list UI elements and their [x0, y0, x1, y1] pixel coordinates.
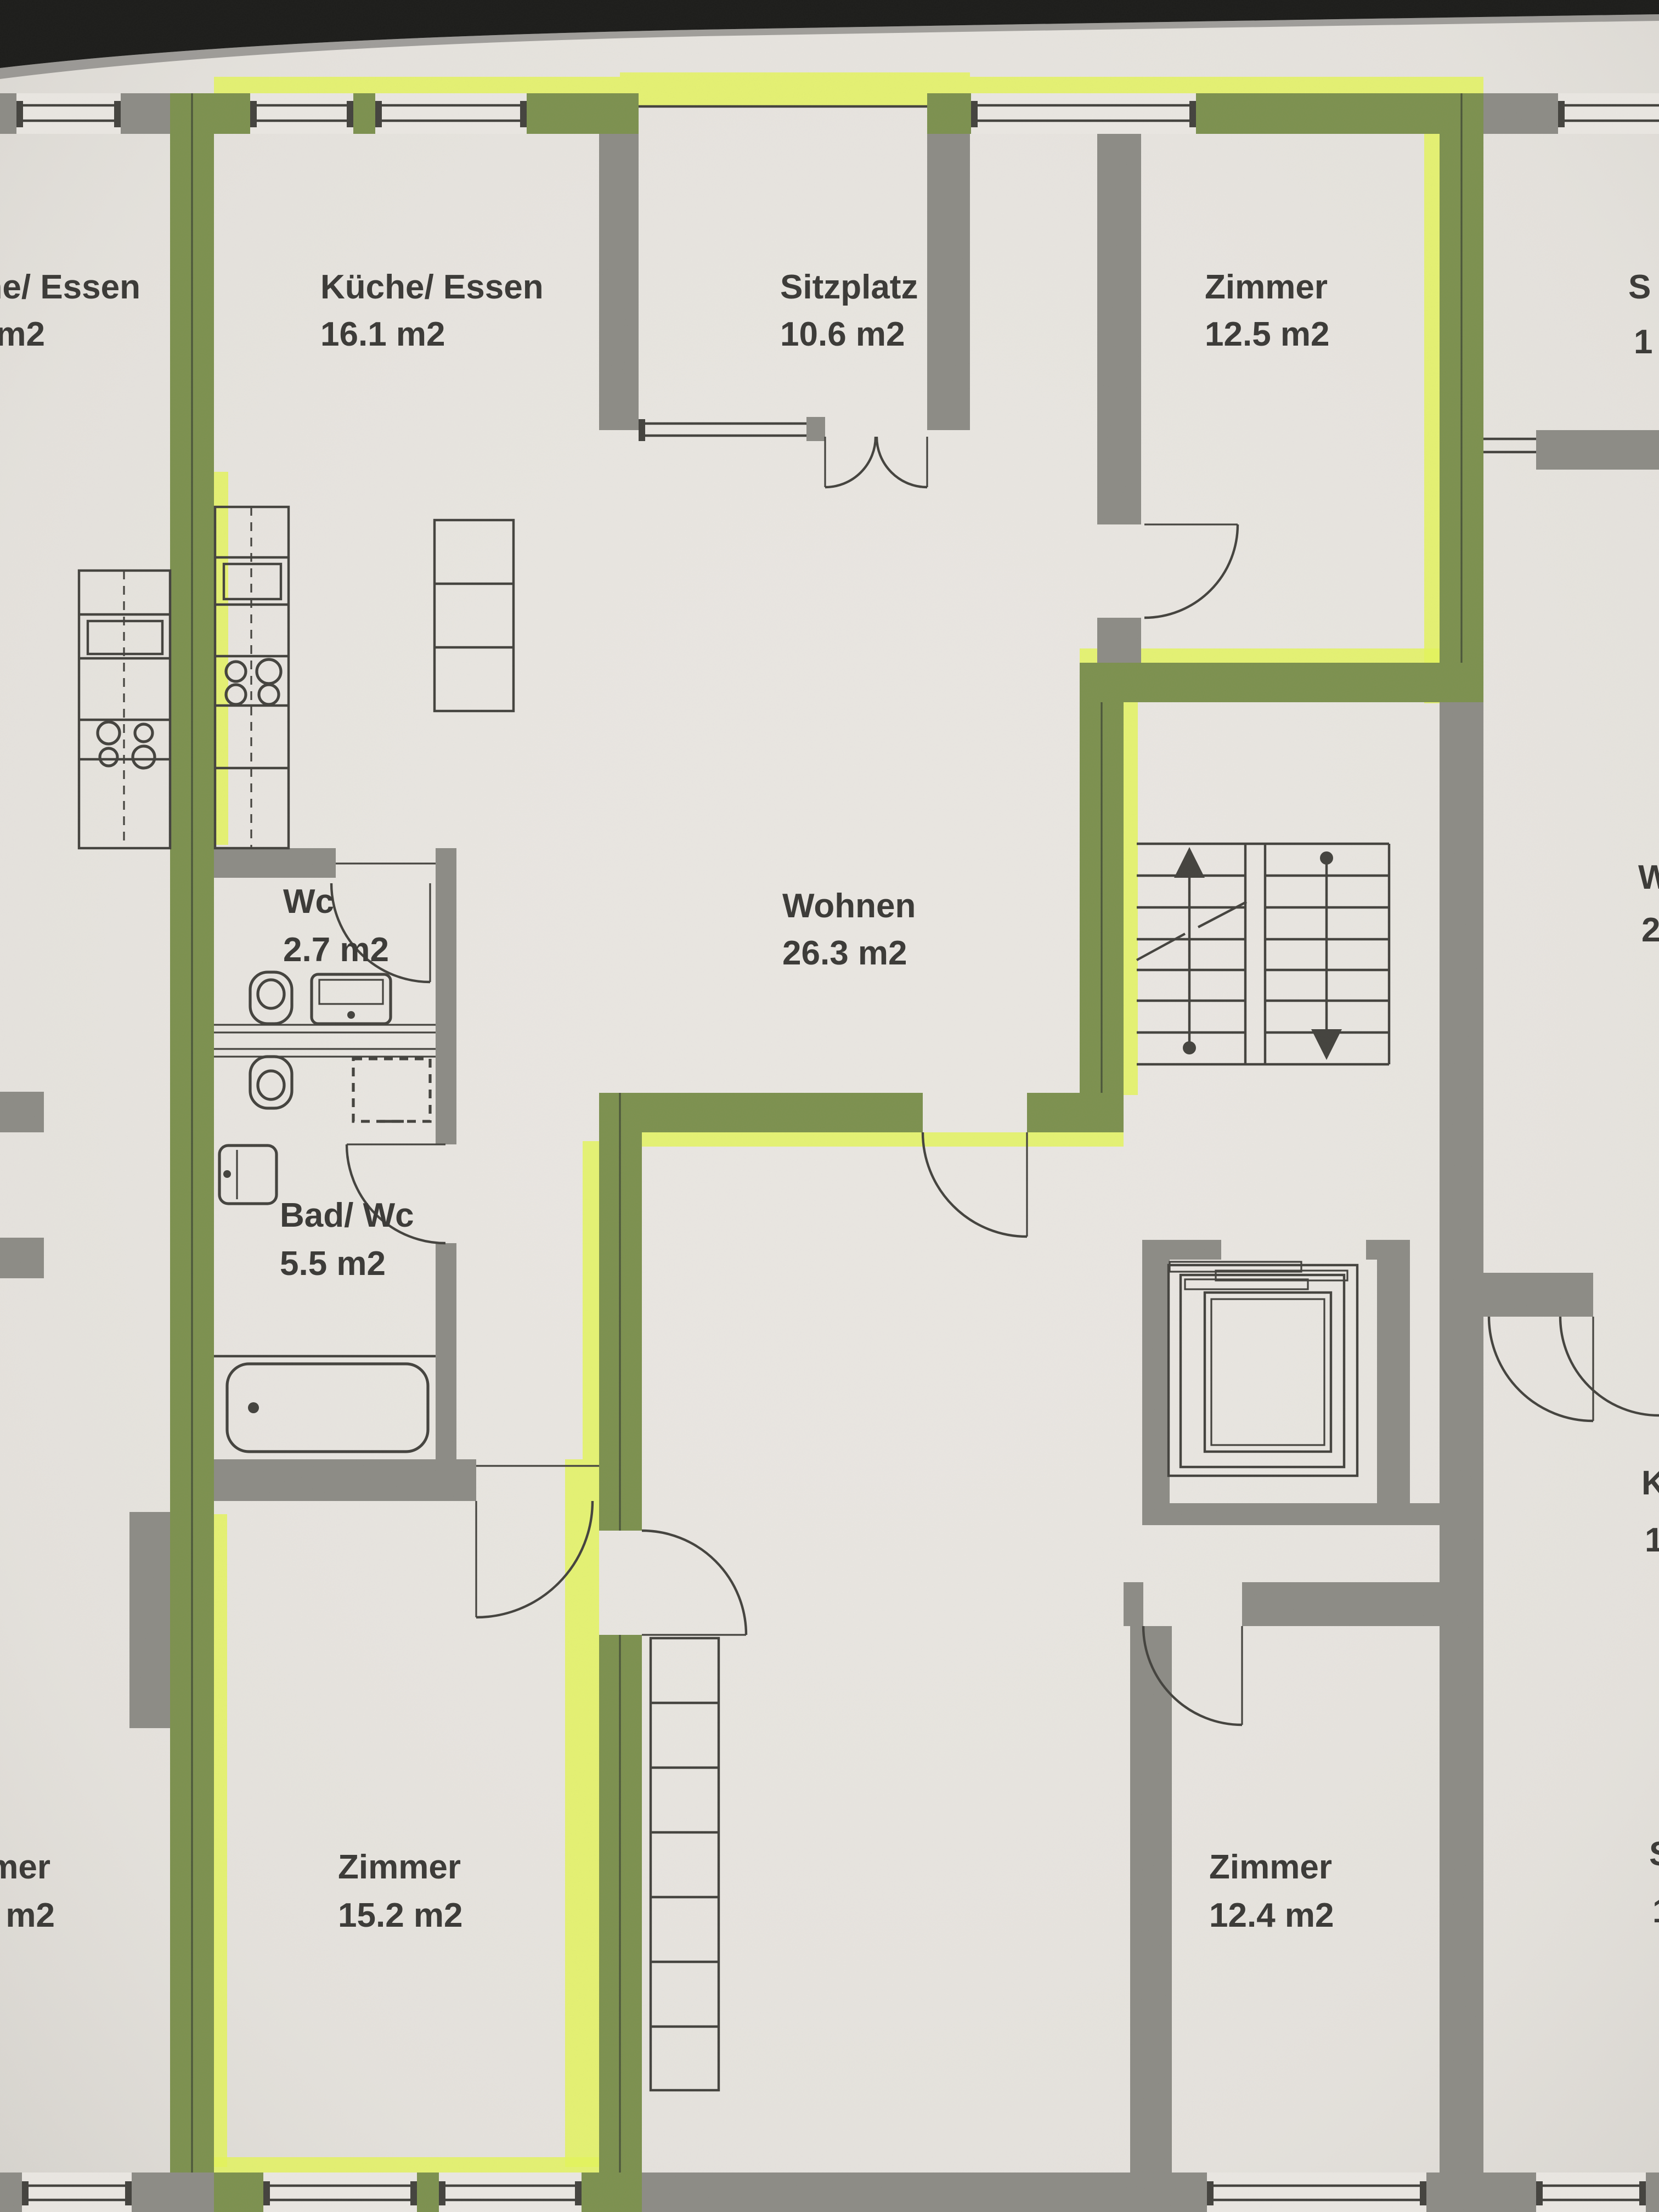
floor-plan-photo: Küche/ Essen16.1 m2 Sitzplatz10.6 m2 Zim…: [0, 0, 1659, 2212]
floor-plan-svg: Küche/ Essen16.1 m2 Sitzplatz10.6 m2 Zim…: [0, 0, 1659, 2212]
photo-grain: [0, 0, 1659, 2212]
